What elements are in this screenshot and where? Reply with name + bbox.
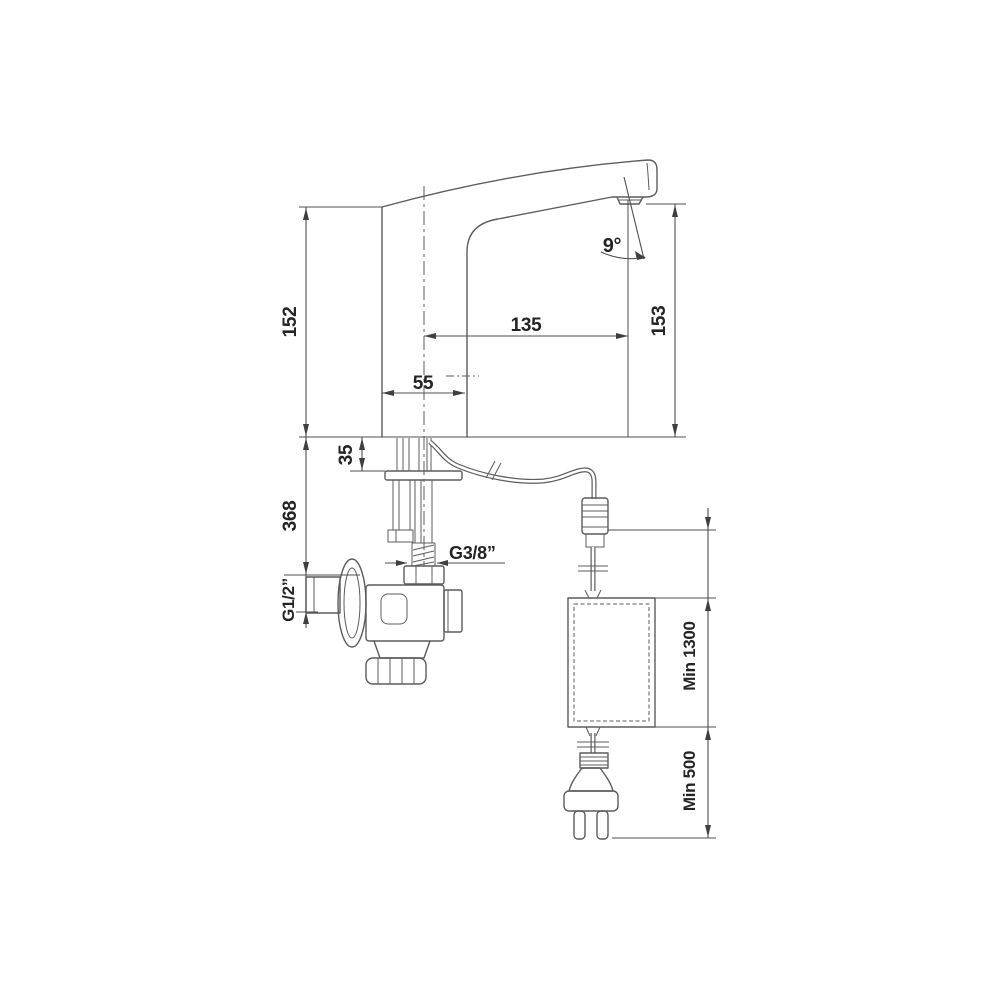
jet-angle-line xyxy=(624,177,644,259)
plug-pin-left xyxy=(574,811,585,839)
handwheel xyxy=(366,658,426,684)
wall-escutcheon xyxy=(338,559,366,647)
valve-stem xyxy=(374,641,430,658)
plug-bell xyxy=(569,768,613,791)
valve-cap xyxy=(444,590,462,632)
faucet-technical-drawing: 152 368 35 G1/2” 55 135 153 9° G3/8” Min… xyxy=(0,0,1000,1000)
jet-angle-label: 9° xyxy=(603,235,622,257)
plug-base xyxy=(564,791,618,811)
spout-face-line xyxy=(647,163,649,190)
mains-cord xyxy=(577,727,609,753)
power-supply-box xyxy=(568,598,655,727)
base-width-label: 55 xyxy=(413,373,434,394)
outlet-height-label: 153 xyxy=(649,306,670,337)
dimension-lines xyxy=(306,177,708,838)
cable-connector xyxy=(578,498,608,598)
faucet-outline xyxy=(382,160,657,437)
inlet-thread-label: G1/2” xyxy=(279,578,298,622)
angle-valve xyxy=(306,559,462,684)
deck-thickness-label: 35 xyxy=(336,444,357,465)
valve-body xyxy=(366,585,444,641)
plug-pin-right xyxy=(597,811,608,839)
extension-lines xyxy=(284,200,716,838)
drawing-canvas: 152 368 35 G1/2” 55 135 153 9° G3/8” Min… xyxy=(0,0,1000,1000)
cord-min-length-label: Min 500 xyxy=(680,751,699,811)
arrowheads xyxy=(303,205,711,837)
body-height-label: 152 xyxy=(280,307,301,338)
cable-min-length-label: Min 1300 xyxy=(680,621,699,690)
spout-reach-label: 135 xyxy=(511,315,543,336)
supply-depth-label: 368 xyxy=(280,501,301,532)
coupling-nut xyxy=(404,566,444,584)
mains-plug xyxy=(564,753,618,839)
inlet-pipe xyxy=(306,577,340,613)
dimension-labels: 152 368 35 G1/2” 55 135 153 9° G3/8” Min… xyxy=(279,235,699,811)
outlet-thread-label: G3/8” xyxy=(449,543,496,563)
pipe-foot xyxy=(388,530,413,542)
